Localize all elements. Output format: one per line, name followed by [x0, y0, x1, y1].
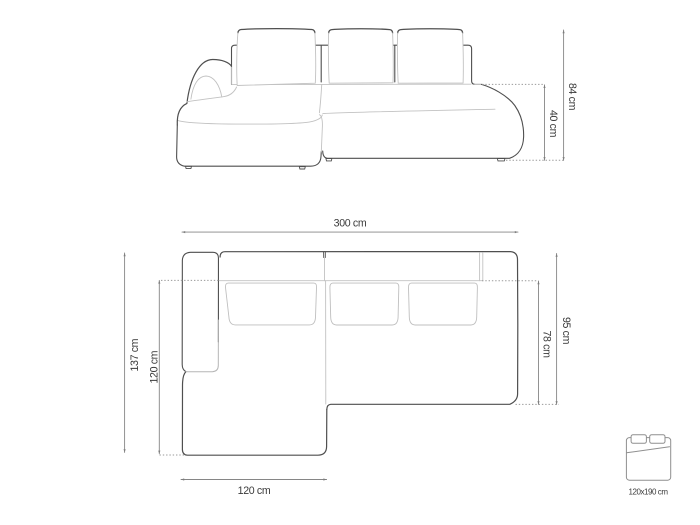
- svg-text:120x190 cm: 120x190 cm: [628, 488, 668, 497]
- svg-text:300 cm: 300 cm: [334, 218, 367, 230]
- svg-text:137 cm: 137 cm: [129, 338, 141, 371]
- svg-text:78 cm: 78 cm: [540, 331, 552, 359]
- svg-text:95 cm: 95 cm: [560, 317, 572, 345]
- svg-text:120 cm: 120 cm: [149, 350, 161, 383]
- svg-text:120 cm: 120 cm: [238, 485, 271, 497]
- svg-text:40 cm: 40 cm: [547, 110, 559, 138]
- svg-text:84 cm: 84 cm: [566, 83, 578, 111]
